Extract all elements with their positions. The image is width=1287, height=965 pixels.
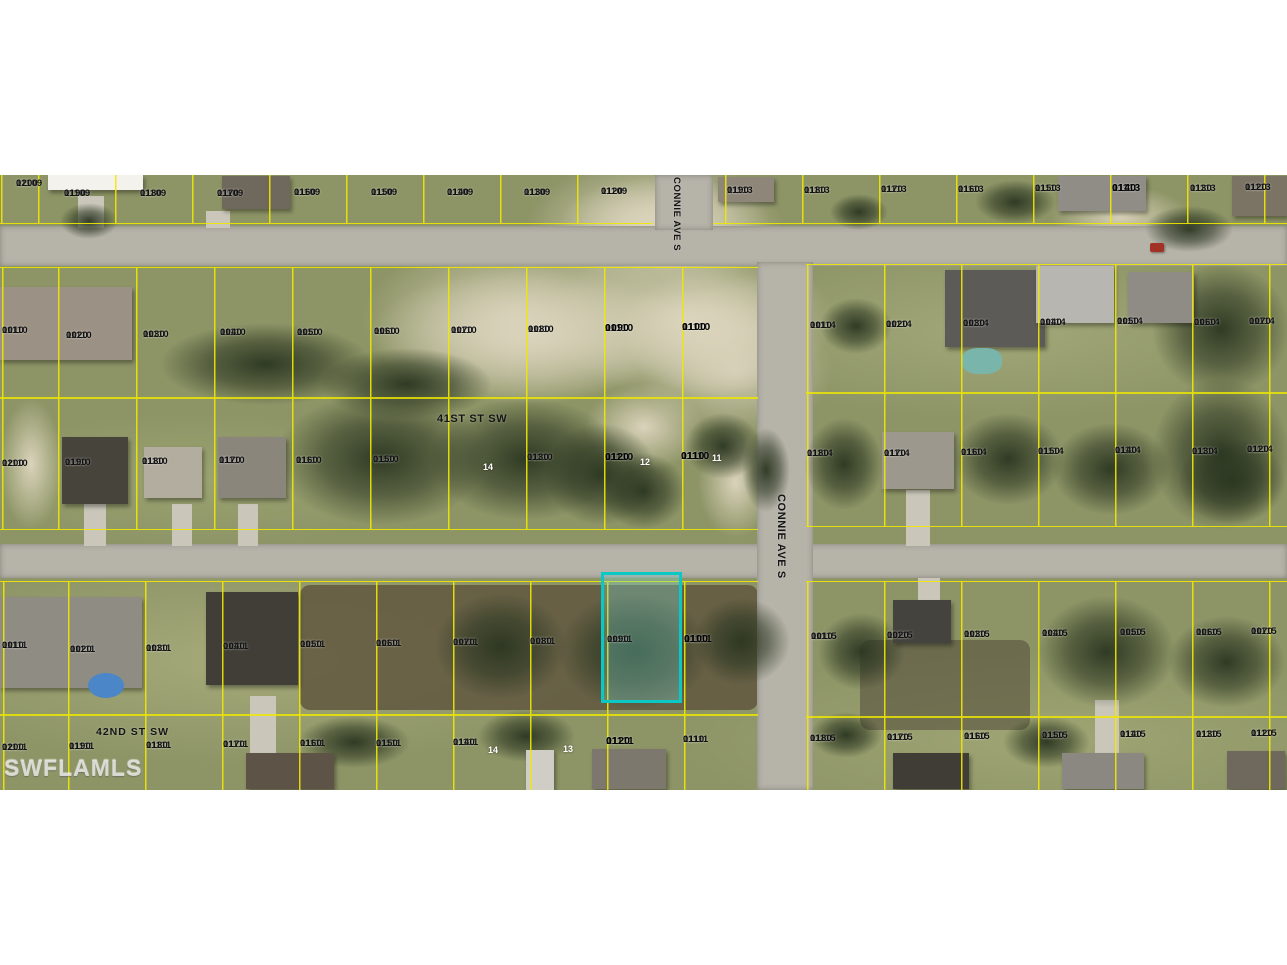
parcel-boundary-line: [0, 397, 758, 399]
parcel-boundary-grid: [0, 175, 653, 224]
parcel-boundary-grid: [806, 581, 1287, 790]
lot-number: 13: [563, 744, 573, 754]
lot-number: 14: [483, 462, 493, 472]
parcel-boundary-grid: [0, 267, 758, 530]
lot-number: 12: [640, 457, 650, 467]
mls-listing-map-screenshot: 1110902001110901901110901801110901701110…: [0, 0, 1287, 965]
aerial-parcel-map: 1110902001110901901110901801110901701110…: [0, 175, 1287, 790]
road-41st-st-sw: [0, 226, 1287, 266]
street-label-42nd-st-sw: 42ND ST SW: [96, 726, 169, 738]
street-label-41st-st-sw: 41ST ST SW: [437, 413, 507, 425]
red-car: [1150, 243, 1164, 252]
street-label-connie-ave-s-south: CONNIE AVE S: [775, 494, 787, 579]
parcel-boundary-line: [0, 714, 758, 716]
parcel-boundary-line: [806, 716, 1287, 718]
watermark: SWFLAMLS: [4, 755, 142, 782]
street-label-connie-ave-s-north: CONNIE AVE S: [671, 177, 682, 251]
parcel-boundary-grid: [806, 264, 1287, 527]
lot-number: 14: [488, 745, 498, 755]
lot-number: 11: [712, 453, 722, 463]
parcel-boundary-line: [806, 392, 1287, 394]
road-connie-ave-s-north: [655, 175, 713, 230]
